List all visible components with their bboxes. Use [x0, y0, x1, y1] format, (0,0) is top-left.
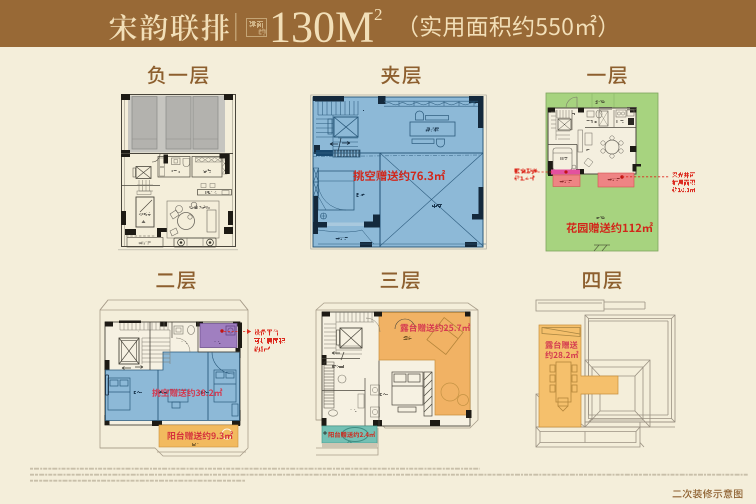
svg-text:2: 2: [374, 5, 383, 24]
svg-text:130M: 130M: [269, 3, 374, 52]
